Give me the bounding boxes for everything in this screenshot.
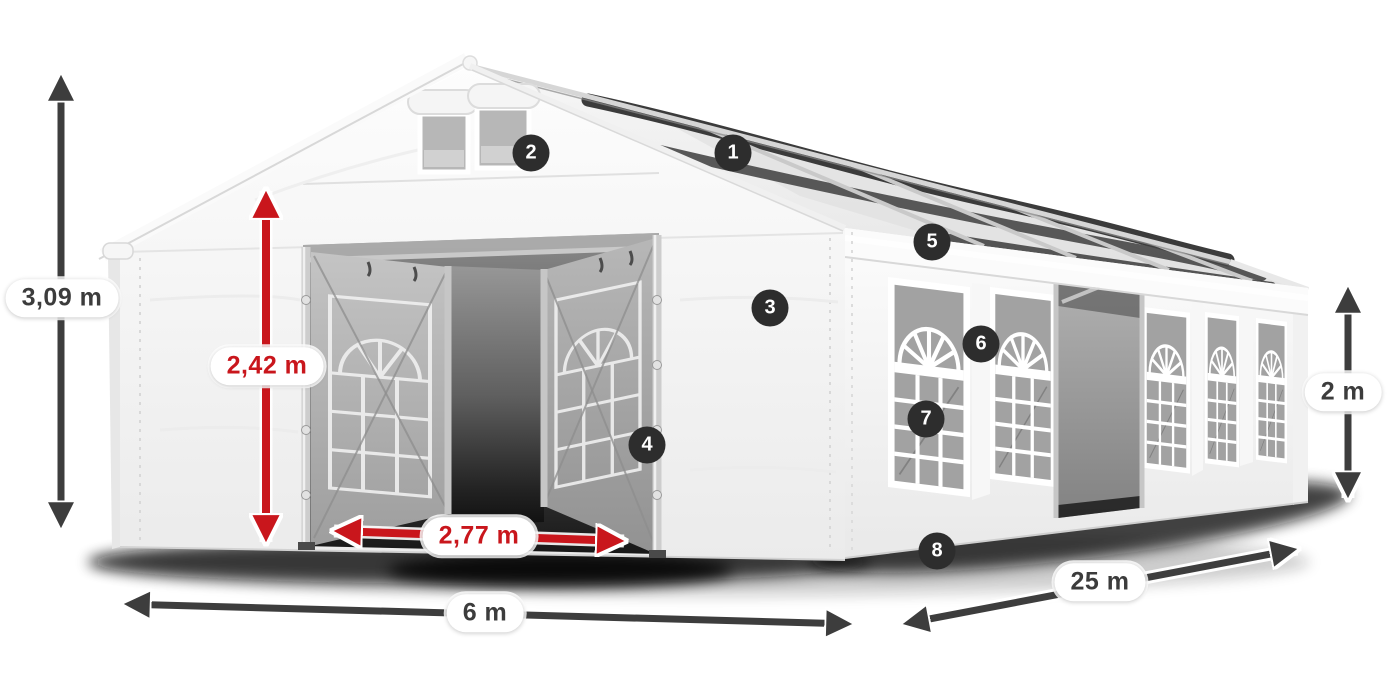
side-window xyxy=(888,277,970,497)
window-mullion xyxy=(1192,300,1203,476)
feature-marker-7: 7 xyxy=(908,401,945,438)
side-window xyxy=(990,287,1056,487)
back-corner-panel xyxy=(1293,306,1308,505)
dimension-label-entrance-width: 2,77 m xyxy=(423,517,536,555)
feature-marker-4: 4 xyxy=(629,427,666,464)
tent-dimension-diagram: 3,09 m 2,42 m 2,77 m 6 m 25 m 2 m 1 2 3 … xyxy=(0,0,1400,700)
door-leaf-right xyxy=(544,238,656,554)
side-window xyxy=(1205,312,1239,467)
window-mullion xyxy=(972,283,990,500)
dimension-label-entrance-height: 2,42 m xyxy=(211,347,324,385)
feature-marker-2: 2 xyxy=(513,135,550,172)
feature-marker-1: 1 xyxy=(715,135,752,172)
feature-marker-6: 6 xyxy=(963,326,1000,363)
entrance-center-gap xyxy=(448,266,544,526)
vent-rolled-flap xyxy=(468,84,540,108)
tent-illustration xyxy=(0,0,1400,700)
side-window xyxy=(1143,307,1190,474)
dimension-label-width: 6 m xyxy=(447,594,524,632)
side-wall-open-gap xyxy=(1058,283,1140,518)
feature-marker-5: 5 xyxy=(914,224,951,261)
door-leaf-left xyxy=(311,252,448,546)
dimension-label-length: 25 m xyxy=(1055,563,1146,601)
gable-vent-window xyxy=(408,90,478,172)
dimension-label-total-height: 3,09 m xyxy=(6,279,119,317)
entrance xyxy=(298,233,666,558)
dimension-label-side-height: 2 m xyxy=(1305,373,1382,411)
feature-marker-3: 3 xyxy=(752,290,789,327)
eave-corner-cap xyxy=(103,243,133,259)
window-mullion xyxy=(1240,306,1253,466)
side-window xyxy=(1256,318,1287,463)
feature-marker-8: 8 xyxy=(919,533,956,570)
